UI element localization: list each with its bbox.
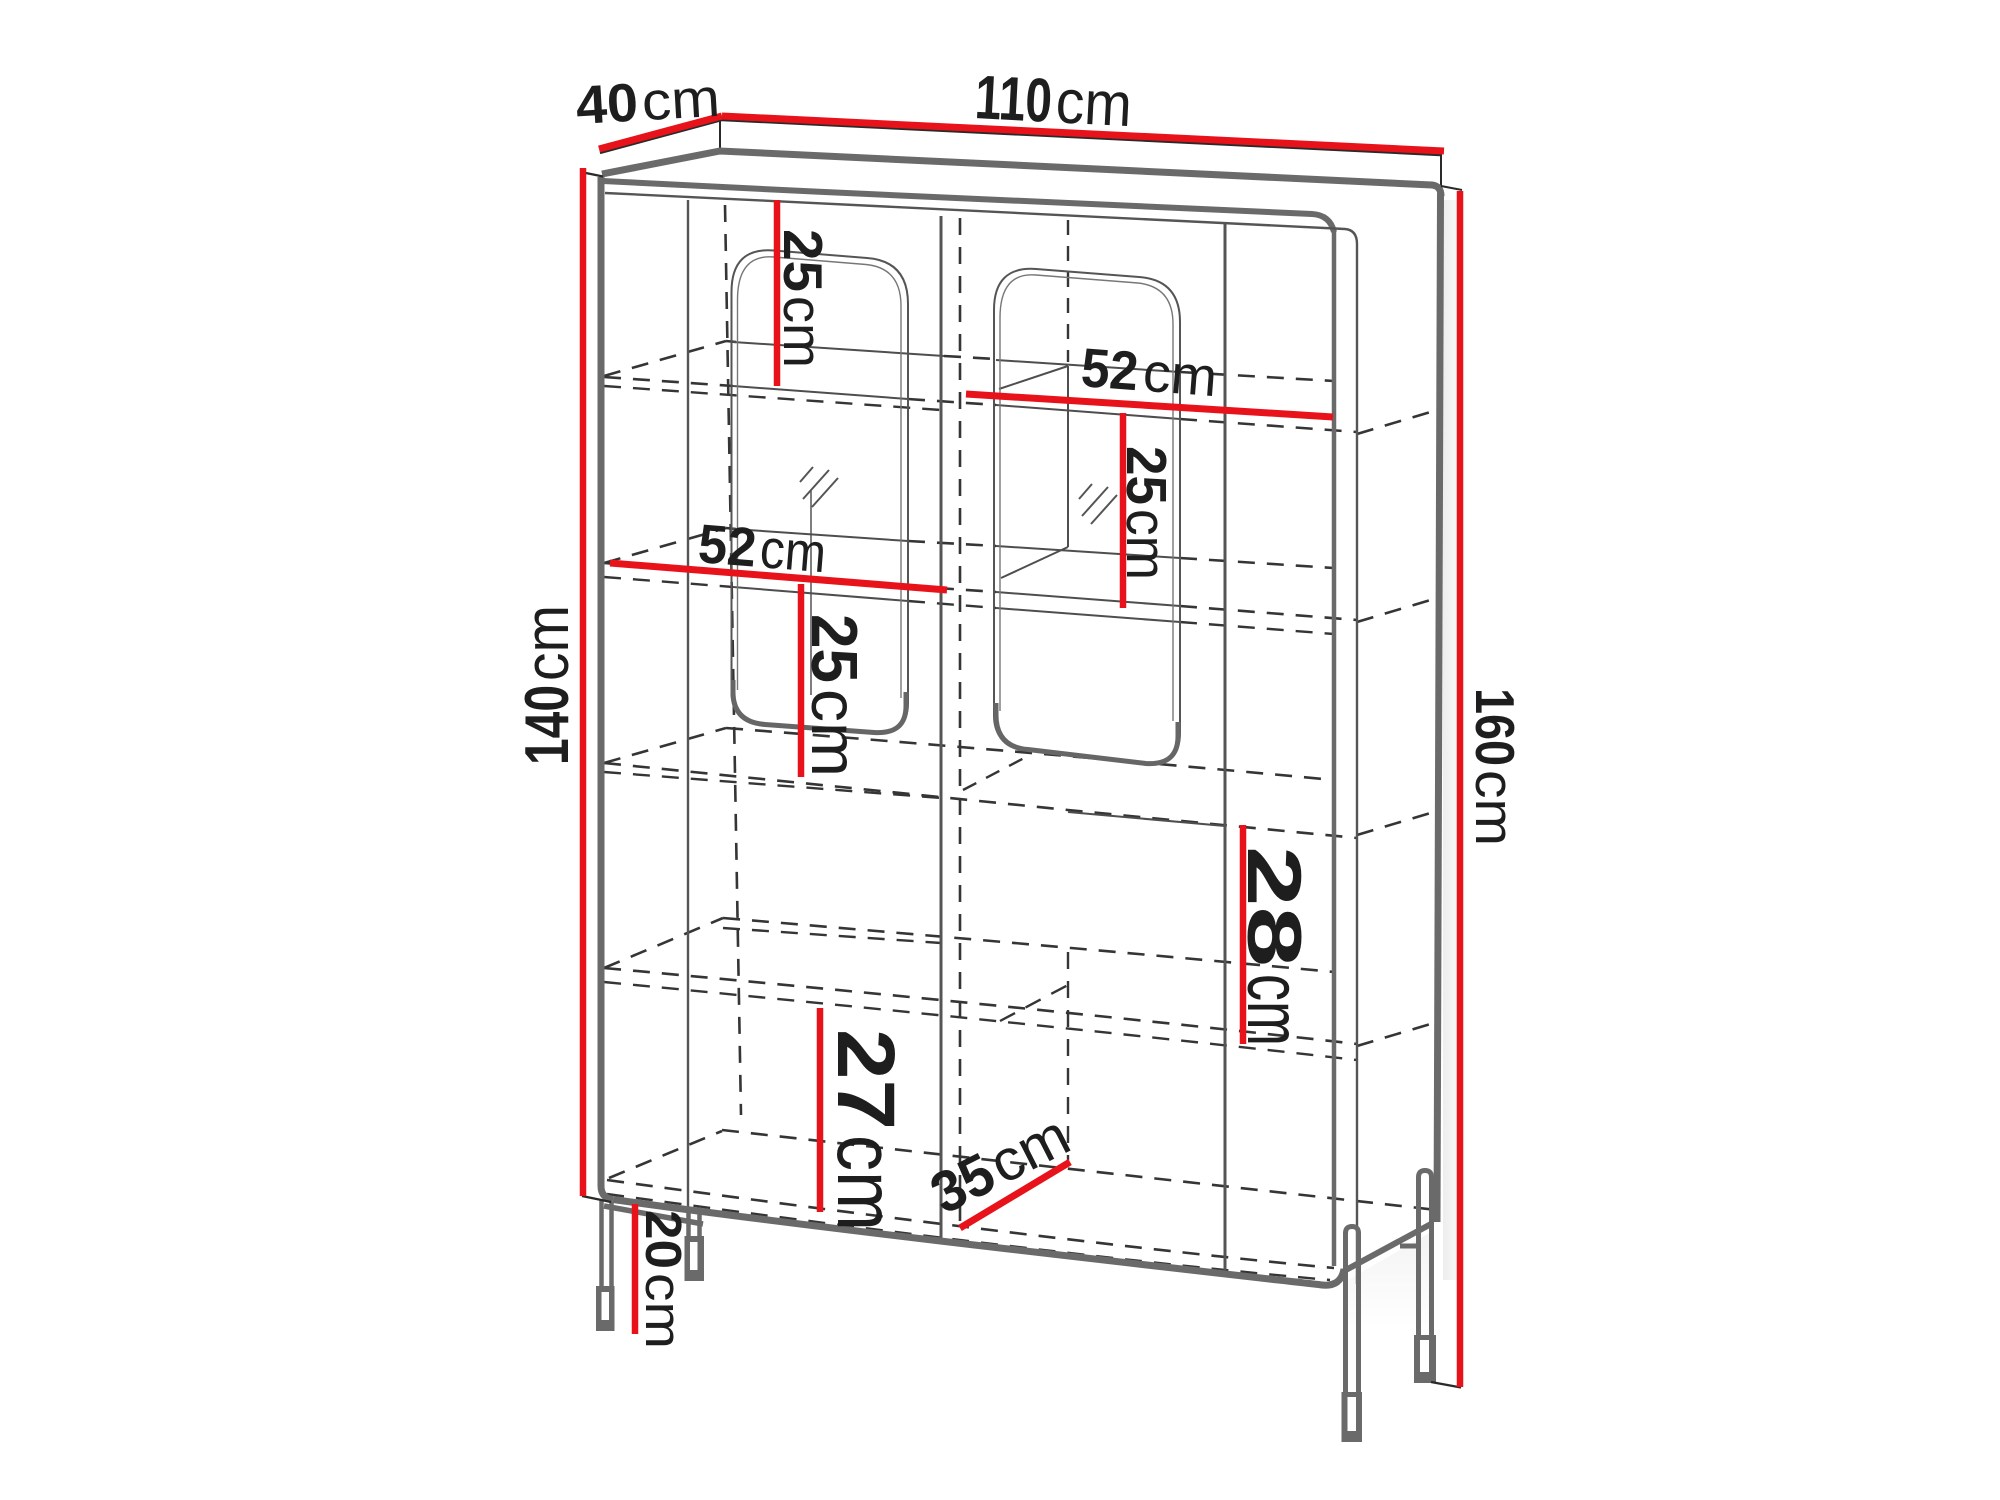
svg-text:40: 40 xyxy=(574,73,639,136)
svg-text:25: 25 xyxy=(772,229,834,292)
svg-text:cm: cm xyxy=(1464,770,1526,846)
svg-text:52: 52 xyxy=(696,512,759,578)
svg-text:25: 25 xyxy=(798,614,871,683)
svg-text:cm: cm xyxy=(758,517,829,584)
svg-text:160: 160 xyxy=(1464,688,1526,766)
svg-text:140: 140 xyxy=(513,685,582,765)
svg-text:28: 28 xyxy=(1231,846,1316,967)
svg-text:cm: cm xyxy=(1114,509,1178,580)
svg-text:cm: cm xyxy=(513,605,582,681)
svg-text:cm: cm xyxy=(798,689,871,777)
svg-text:cm: cm xyxy=(1231,974,1316,1046)
svg-text:cm: cm xyxy=(640,68,721,132)
svg-text:52: 52 xyxy=(1079,336,1140,402)
svg-text:cm: cm xyxy=(1141,341,1219,408)
svg-text:cm: cm xyxy=(635,1273,692,1349)
svg-text:cm: cm xyxy=(772,296,834,368)
svg-text:cm: cm xyxy=(1054,67,1134,140)
svg-text:cm: cm xyxy=(820,1135,911,1231)
svg-text:25: 25 xyxy=(1114,446,1178,505)
svg-text:20: 20 xyxy=(635,1210,692,1269)
svg-text:27: 27 xyxy=(820,1029,911,1130)
svg-text:110: 110 xyxy=(973,63,1054,136)
